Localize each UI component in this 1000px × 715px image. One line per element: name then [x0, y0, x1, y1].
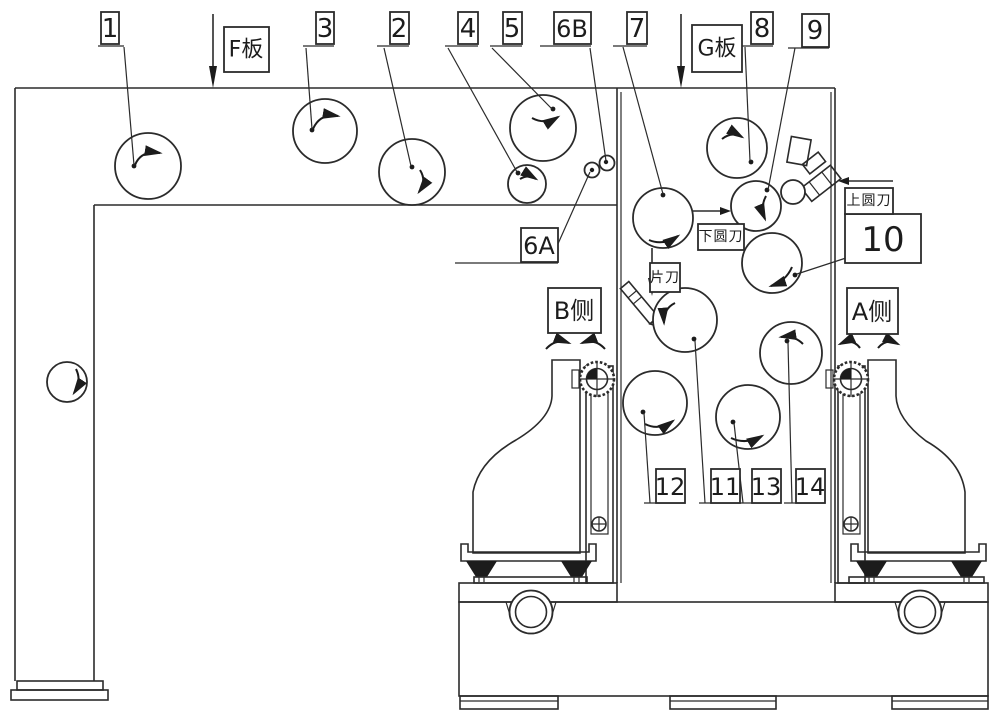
machine-base [459, 583, 988, 709]
annotation-lower-circular-cutter: 下圆刀 [698, 224, 744, 250]
part-label-4-text: 4 [460, 14, 477, 44]
a-press-pad-left [856, 561, 887, 577]
part-label-4: 4 [458, 12, 478, 44]
part-label-10-text: 10 [861, 220, 904, 260]
roller-5 [510, 95, 576, 161]
b-side-press [461, 360, 615, 583]
a-side-press [826, 360, 986, 583]
annotation-sheet-cutter: 片刀 [650, 263, 680, 292]
a-press-bearing [826, 361, 869, 397]
annotation-f-plate-text: F板 [229, 38, 264, 63]
annotation-upper-circular-cutter: 上圆刀 [845, 188, 893, 214]
cutter-shaft-circle [781, 180, 805, 204]
base-foot-right [892, 696, 988, 709]
part-label-9: 9 [802, 14, 829, 47]
part-label-3-text: 3 [317, 14, 334, 44]
patent-machine-diagram: 1 3 2 4 5 6B 7 8 [0, 0, 1000, 715]
part-label-12-text: 12 [655, 473, 686, 501]
part-label-7: 7 [627, 12, 647, 44]
part-label-10: 10 [845, 214, 921, 263]
part-label-7-text: 7 [629, 14, 646, 44]
b-press-bearing [572, 361, 615, 397]
part-label-8-text: 8 [754, 14, 771, 44]
part-label-5: 5 [503, 12, 522, 44]
a-side-swing-arrows [840, 342, 898, 348]
b-side-swing-arrows [546, 341, 605, 349]
roller-8 [707, 118, 767, 178]
annotation-f-plate: F板 [224, 27, 269, 72]
annotation-upper-circular-cutter-text: 上圆刀 [847, 193, 892, 209]
part-label-1-text: 1 [102, 14, 119, 44]
part-label-2-text: 2 [391, 14, 408, 44]
part-label-6b-text: 6B [556, 15, 588, 43]
annotation-lower-circular-cutter-text: 下圆刀 [699, 229, 744, 245]
part-label-6a-text: 6A [523, 232, 555, 260]
g-plate-feed-arrow [677, 14, 685, 88]
roller-14 [760, 322, 822, 384]
part-label-9-text: 9 [807, 16, 824, 46]
annotation-g-plate-text: G板 [697, 37, 736, 62]
part-label-3: 3 [316, 12, 334, 44]
roller-4 [508, 165, 546, 203]
roller-3 [293, 99, 357, 163]
left-column-foot-upper [17, 681, 103, 690]
b-slide-bar [586, 366, 613, 583]
part-label-14: 14 [795, 469, 826, 503]
roller-1 [115, 133, 181, 199]
b-press-pad-right [561, 561, 592, 577]
annotation-b-side-text: B侧 [554, 297, 594, 325]
left-column-foot-lower [11, 690, 108, 700]
annotation-b-side: B侧 [548, 288, 601, 333]
part-label-11: 11 [710, 469, 741, 503]
f-plate-feed-arrow [209, 14, 217, 88]
a-press-column [868, 360, 965, 553]
diagram-canvas: 1 3 2 4 5 6B 7 8 [0, 0, 1000, 715]
detector-6b [600, 156, 615, 171]
roller-10 [742, 233, 802, 293]
a-side-base-shaft [895, 591, 945, 634]
part-label-11-text: 11 [710, 473, 741, 501]
part-label-12: 12 [655, 469, 686, 503]
annotation-a-side-text: A侧 [852, 298, 892, 326]
annotation-a-side: A侧 [847, 288, 898, 334]
part-label-6a: 6A [521, 228, 558, 262]
roller-13 [716, 385, 780, 449]
part-label-14-text: 14 [795, 473, 826, 501]
roller-12 [623, 371, 687, 435]
upper-cutter-arrow [838, 177, 893, 185]
annotation-sheet-cutter-text: 片刀 [650, 270, 680, 286]
roller-11 [653, 288, 717, 352]
a-press-pad-right [951, 561, 982, 577]
part-label-5-text: 5 [504, 14, 521, 44]
b-press-bracket [461, 544, 596, 561]
roller-left-column [47, 362, 87, 402]
b-side-base-shaft [506, 591, 556, 634]
annotation-g-plate: G板 [692, 25, 742, 72]
rollers [47, 95, 822, 449]
detector-6a [585, 163, 600, 178]
b-press-pad-left [466, 561, 497, 577]
roller-7 [633, 188, 693, 248]
roller-2 [379, 139, 445, 205]
base-foot-left [460, 696, 558, 709]
part-label-13-text: 13 [751, 473, 782, 501]
part-label-6b: 6B [554, 12, 591, 44]
b-press-column [473, 360, 580, 553]
part-label-8: 8 [751, 12, 773, 44]
part-label-2: 2 [390, 12, 409, 44]
part-label-13: 13 [751, 469, 782, 503]
base-foot-middle [670, 696, 776, 709]
part-label-1: 1 [101, 12, 119, 44]
annotation-labels: F板 G板 上圆刀 下圆刀 片刀 B侧 A侧 [224, 25, 898, 334]
circular-cutter-assembly [781, 136, 841, 204]
b-press-plate [474, 577, 587, 583]
